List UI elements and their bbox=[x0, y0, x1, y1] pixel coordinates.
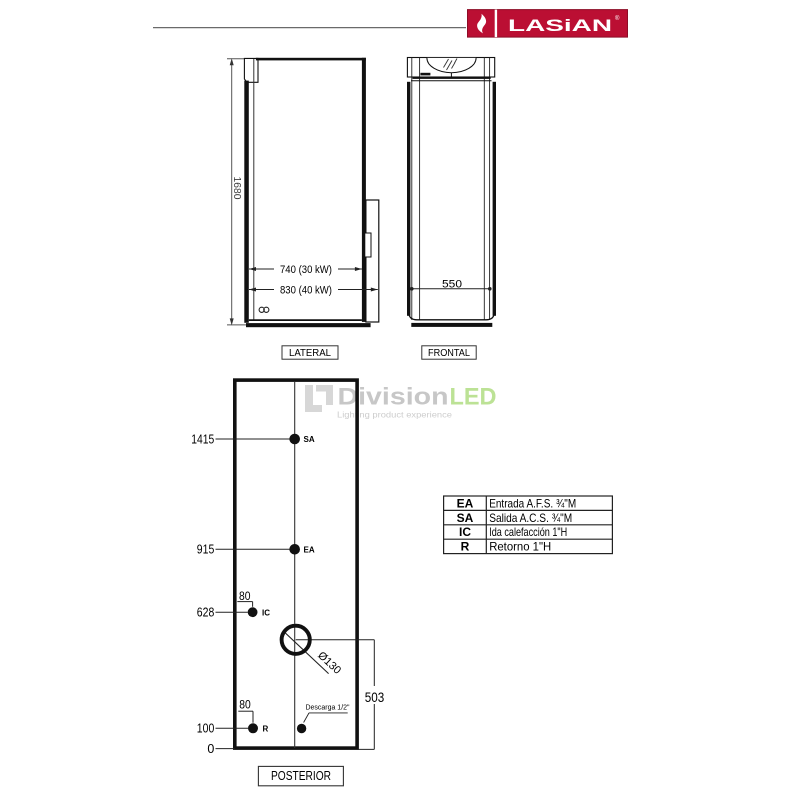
svg-text:Salida A.C.S. ¾"M: Salida A.C.S. ¾"M bbox=[489, 511, 572, 525]
svg-text:80: 80 bbox=[239, 699, 251, 711]
svg-text:Division: Division bbox=[338, 384, 449, 411]
svg-text:EA: EA bbox=[304, 546, 315, 555]
svg-text:LASiAN: LASiAN bbox=[508, 17, 612, 35]
svg-text:LATERAL: LATERAL bbox=[289, 347, 331, 359]
svg-text:FRONTAL: FRONTAL bbox=[428, 347, 470, 359]
svg-text:R: R bbox=[263, 725, 269, 734]
svg-text:Lighting product experience: Lighting product experience bbox=[337, 410, 452, 420]
svg-text:Ida calefacción 1"H: Ida calefacción 1"H bbox=[489, 525, 567, 539]
svg-text:Retorno 1"H: Retorno 1"H bbox=[489, 540, 551, 554]
svg-text:915: 915 bbox=[197, 543, 215, 557]
svg-text:IC: IC bbox=[459, 525, 471, 539]
svg-text:Entrada A.F.S. ¾"M: Entrada A.F.S. ¾"M bbox=[489, 496, 576, 510]
svg-text:EA: EA bbox=[457, 496, 474, 510]
svg-text:0: 0 bbox=[207, 742, 214, 756]
svg-text:SA: SA bbox=[304, 435, 315, 444]
svg-text:628: 628 bbox=[197, 606, 215, 620]
svg-text:R: R bbox=[461, 540, 470, 554]
svg-text:®: ® bbox=[615, 15, 620, 22]
svg-text:IC: IC bbox=[262, 608, 270, 617]
svg-text:100: 100 bbox=[197, 722, 215, 736]
svg-text:LED: LED bbox=[450, 384, 497, 411]
svg-text:1415: 1415 bbox=[191, 432, 214, 446]
svg-text:POSTERIOR: POSTERIOR bbox=[271, 769, 331, 783]
svg-text:Descarga 1/2": Descarga 1/2" bbox=[306, 702, 350, 711]
svg-text:830 (40 kW): 830 (40 kW) bbox=[280, 285, 332, 297]
svg-text:1680: 1680 bbox=[231, 177, 243, 200]
svg-text:503: 503 bbox=[365, 690, 385, 705]
svg-text:740 (30 kW): 740 (30 kW) bbox=[280, 264, 332, 276]
svg-text:SA: SA bbox=[457, 511, 474, 525]
